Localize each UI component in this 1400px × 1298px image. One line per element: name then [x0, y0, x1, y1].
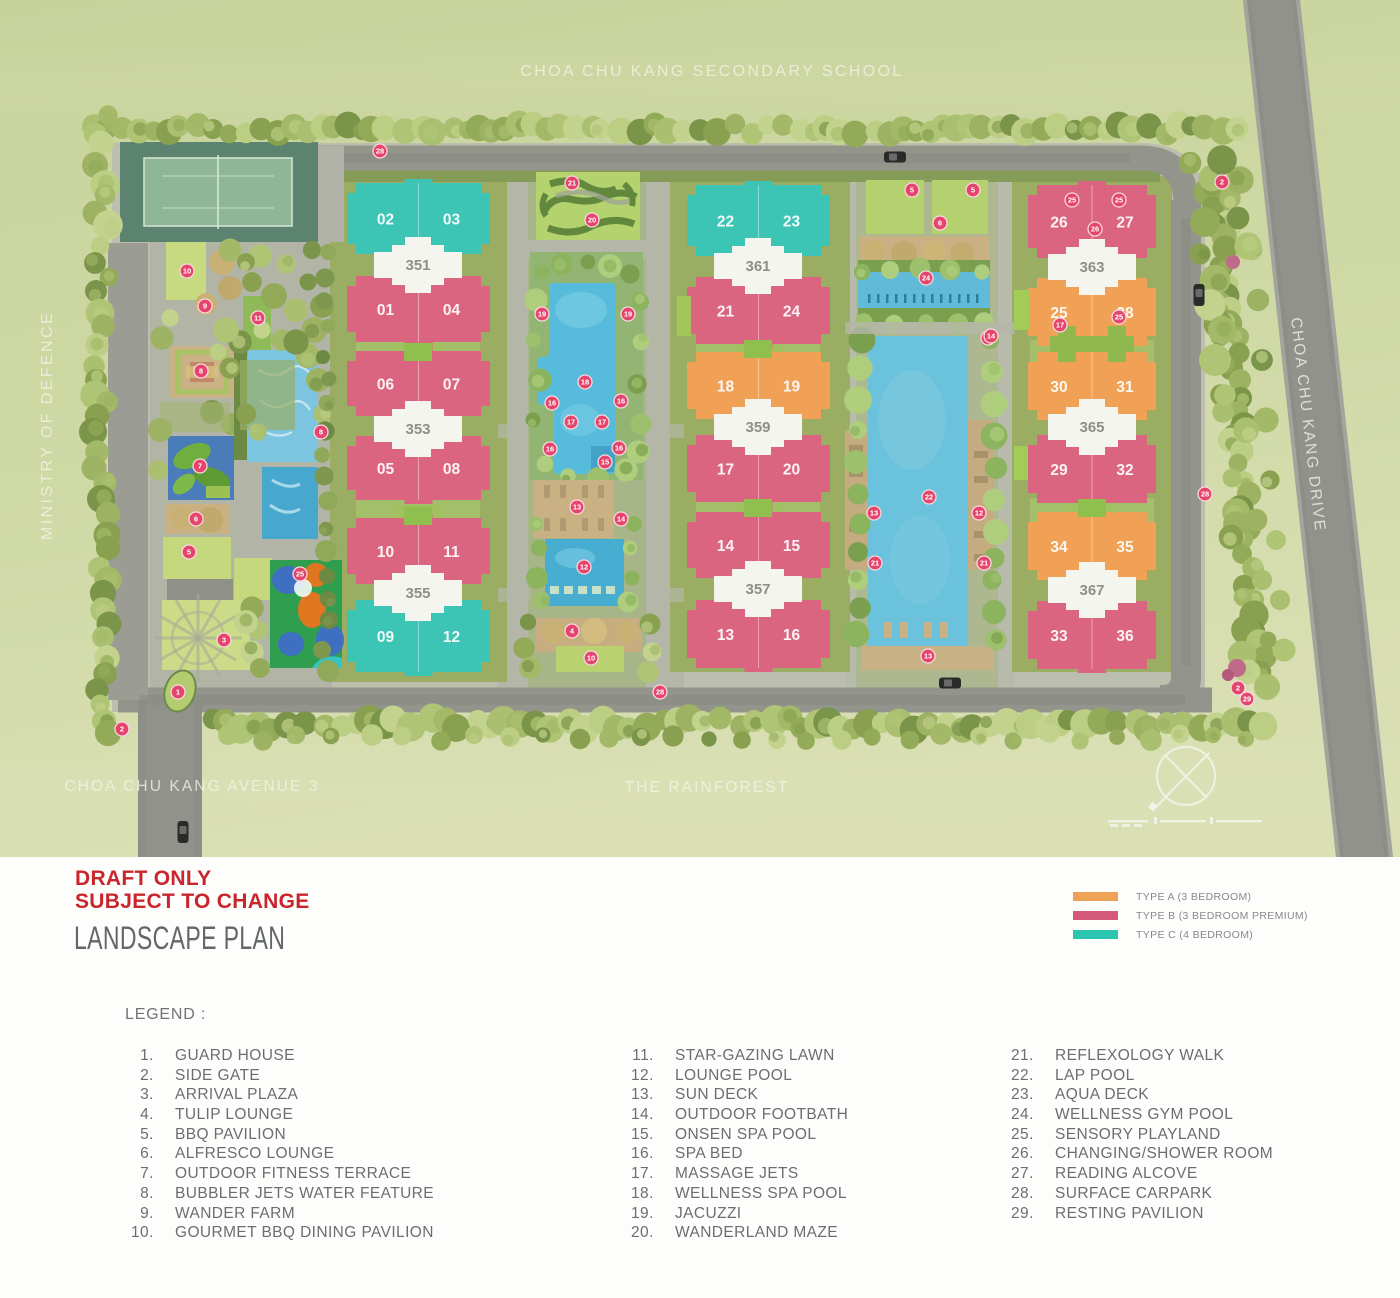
svg-text:15: 15: [601, 458, 609, 467]
svg-text:CHOA CHU KANG AVENUE 3: CHOA CHU KANG AVENUE 3: [64, 778, 319, 795]
svg-text:5: 5: [187, 548, 191, 557]
svg-text:2: 2: [120, 725, 124, 734]
svg-text:22: 22: [717, 214, 734, 231]
svg-text:351: 351: [405, 257, 430, 274]
svg-text:26: 26: [1091, 225, 1099, 234]
svg-text:6: 6: [194, 515, 198, 524]
svg-text:367: 367: [1079, 582, 1104, 599]
svg-text:5: 5: [910, 186, 914, 195]
svg-text:18: 18: [581, 378, 589, 387]
svg-text:26: 26: [1050, 215, 1068, 232]
svg-text:25: 25: [1115, 313, 1123, 322]
svg-text:16: 16: [548, 399, 556, 408]
svg-text:13: 13: [870, 509, 878, 518]
svg-text:3: 3: [222, 636, 226, 645]
svg-text:357: 357: [745, 581, 770, 598]
svg-text:12: 12: [975, 509, 983, 518]
svg-text:365: 365: [1079, 419, 1104, 436]
svg-text:17: 17: [567, 418, 575, 427]
svg-text:361: 361: [745, 258, 770, 275]
svg-text:33: 33: [1050, 628, 1068, 645]
svg-text:22: 22: [925, 493, 933, 502]
svg-text:21: 21: [980, 559, 988, 568]
svg-text:11: 11: [443, 544, 460, 561]
svg-text:13: 13: [717, 627, 735, 644]
svg-text:10: 10: [183, 267, 191, 276]
svg-text:17: 17: [717, 462, 734, 479]
svg-text:06: 06: [377, 377, 395, 394]
svg-text:07: 07: [443, 377, 460, 394]
svg-text:19: 19: [783, 379, 801, 396]
svg-text:28: 28: [376, 147, 384, 156]
svg-text:28: 28: [1201, 490, 1209, 499]
svg-text:25: 25: [296, 570, 304, 579]
svg-text:32: 32: [1116, 462, 1133, 479]
svg-text:34: 34: [1050, 539, 1068, 556]
svg-text:11: 11: [254, 314, 262, 323]
svg-text:14: 14: [987, 332, 996, 341]
svg-text:05: 05: [377, 461, 395, 478]
svg-text:27: 27: [1116, 215, 1133, 232]
svg-text:23: 23: [783, 214, 801, 231]
svg-text:363: 363: [1079, 259, 1104, 276]
svg-text:35: 35: [1116, 539, 1134, 556]
svg-text:24: 24: [922, 274, 931, 283]
svg-text:21: 21: [871, 559, 879, 568]
svg-text:09: 09: [377, 629, 395, 646]
svg-text:16: 16: [615, 444, 623, 453]
svg-text:14: 14: [617, 515, 626, 524]
svg-text:19: 19: [538, 310, 546, 319]
svg-text:12: 12: [580, 563, 588, 572]
svg-text:13: 13: [924, 652, 932, 661]
svg-text:08: 08: [443, 461, 461, 478]
svg-text:02: 02: [377, 212, 394, 229]
svg-text:17: 17: [1056, 321, 1064, 330]
svg-text:28: 28: [656, 688, 664, 697]
svg-text:6: 6: [938, 219, 942, 228]
svg-text:25: 25: [1115, 196, 1123, 205]
svg-text:THE RAINFOREST: THE RAINFOREST: [625, 779, 790, 796]
svg-text:20: 20: [588, 216, 596, 225]
svg-text:16: 16: [783, 627, 801, 644]
svg-text:03: 03: [443, 212, 461, 229]
svg-text:353: 353: [405, 421, 430, 438]
svg-text:04: 04: [443, 302, 461, 319]
svg-text:36: 36: [1116, 628, 1134, 645]
svg-text:01: 01: [377, 302, 395, 319]
svg-text:21: 21: [568, 179, 576, 188]
svg-text:10: 10: [587, 654, 595, 663]
svg-text:14: 14: [717, 538, 735, 555]
svg-text:2: 2: [1220, 178, 1224, 187]
svg-text:13: 13: [573, 503, 581, 512]
svg-text:29: 29: [1050, 462, 1068, 479]
svg-text:2: 2: [1236, 684, 1240, 693]
svg-text:30: 30: [1050, 379, 1067, 396]
svg-text:24: 24: [783, 304, 801, 321]
svg-text:16: 16: [617, 397, 625, 406]
svg-text:12: 12: [443, 629, 460, 646]
svg-text:CHOA CHU KANG SECONDARY SCHOOL: CHOA CHU KANG SECONDARY SCHOOL: [520, 63, 903, 80]
svg-text:359: 359: [745, 419, 770, 436]
svg-text:5: 5: [971, 186, 975, 195]
svg-text:355: 355: [405, 585, 430, 602]
svg-text:15: 15: [783, 538, 801, 555]
svg-text:21: 21: [717, 304, 735, 321]
svg-text:MINISTRY OF DEFENCE: MINISTRY OF DEFENCE: [39, 311, 56, 540]
svg-text:19: 19: [624, 310, 632, 319]
svg-text:29: 29: [1243, 695, 1251, 704]
svg-text:25: 25: [1068, 196, 1076, 205]
svg-text:8: 8: [199, 367, 203, 376]
svg-text:16: 16: [546, 445, 554, 454]
svg-text:10: 10: [377, 544, 394, 561]
svg-text:9: 9: [203, 302, 207, 311]
svg-text:18: 18: [717, 379, 735, 396]
svg-text:7: 7: [198, 462, 202, 471]
svg-text:17: 17: [598, 418, 606, 427]
svg-text:31: 31: [1116, 379, 1134, 396]
svg-text:8: 8: [319, 428, 323, 437]
svg-text:1: 1: [176, 688, 180, 697]
svg-text:20: 20: [783, 462, 800, 479]
